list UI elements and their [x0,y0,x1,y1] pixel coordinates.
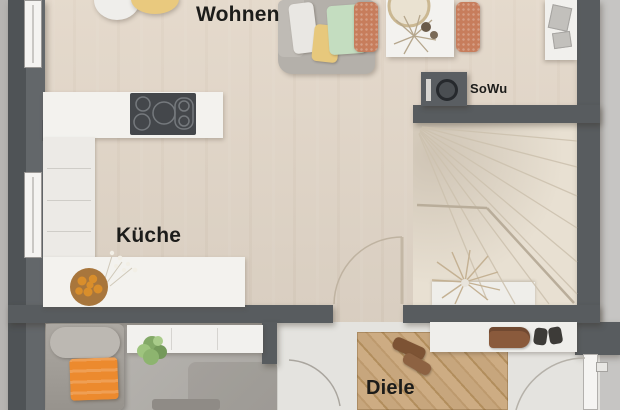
shoes [548,326,564,345]
bedroom-sideboard [127,325,263,353]
handbag [489,327,530,348]
wall-bottom-right [575,322,620,355]
bedroom-bench [152,399,220,410]
floor-plan: Wohnen Küche Diele SoWu [0,0,620,410]
wall-right [577,0,600,322]
cooktop [130,93,196,135]
water-heater-unit [421,72,467,106]
staircase-floor [413,121,579,307]
room-label-kueche: Küche [116,224,181,248]
window-kitchen [24,172,42,258]
entrance-door-handle [596,362,608,372]
dining-chair-right [456,2,480,52]
room-label-wohnen: Wohnen [196,3,280,27]
kitchen-tall-cabinet [43,138,95,258]
bed [46,324,124,410]
exterior-margin [0,0,8,410]
annotation-sowu: SoWu [470,81,507,96]
water-heater-icon [436,79,458,101]
bed-pillow [50,327,120,358]
stair-first-step [432,282,535,306]
wall-stair-beam [413,105,600,123]
dining-table [386,0,454,57]
wall-middle-right [403,305,600,323]
kitchen-counter-bottom [43,257,245,307]
wall-bedroom-stub [262,322,277,364]
window-top-left [24,0,42,68]
desk-top-right [545,0,577,60]
orange-blanket [69,357,118,401]
room-label-diele: Diele [366,377,415,400]
dining-chair-left [354,2,378,52]
water-heater-bar [426,79,431,101]
shoes [533,327,548,346]
wall-middle-left [8,305,333,323]
